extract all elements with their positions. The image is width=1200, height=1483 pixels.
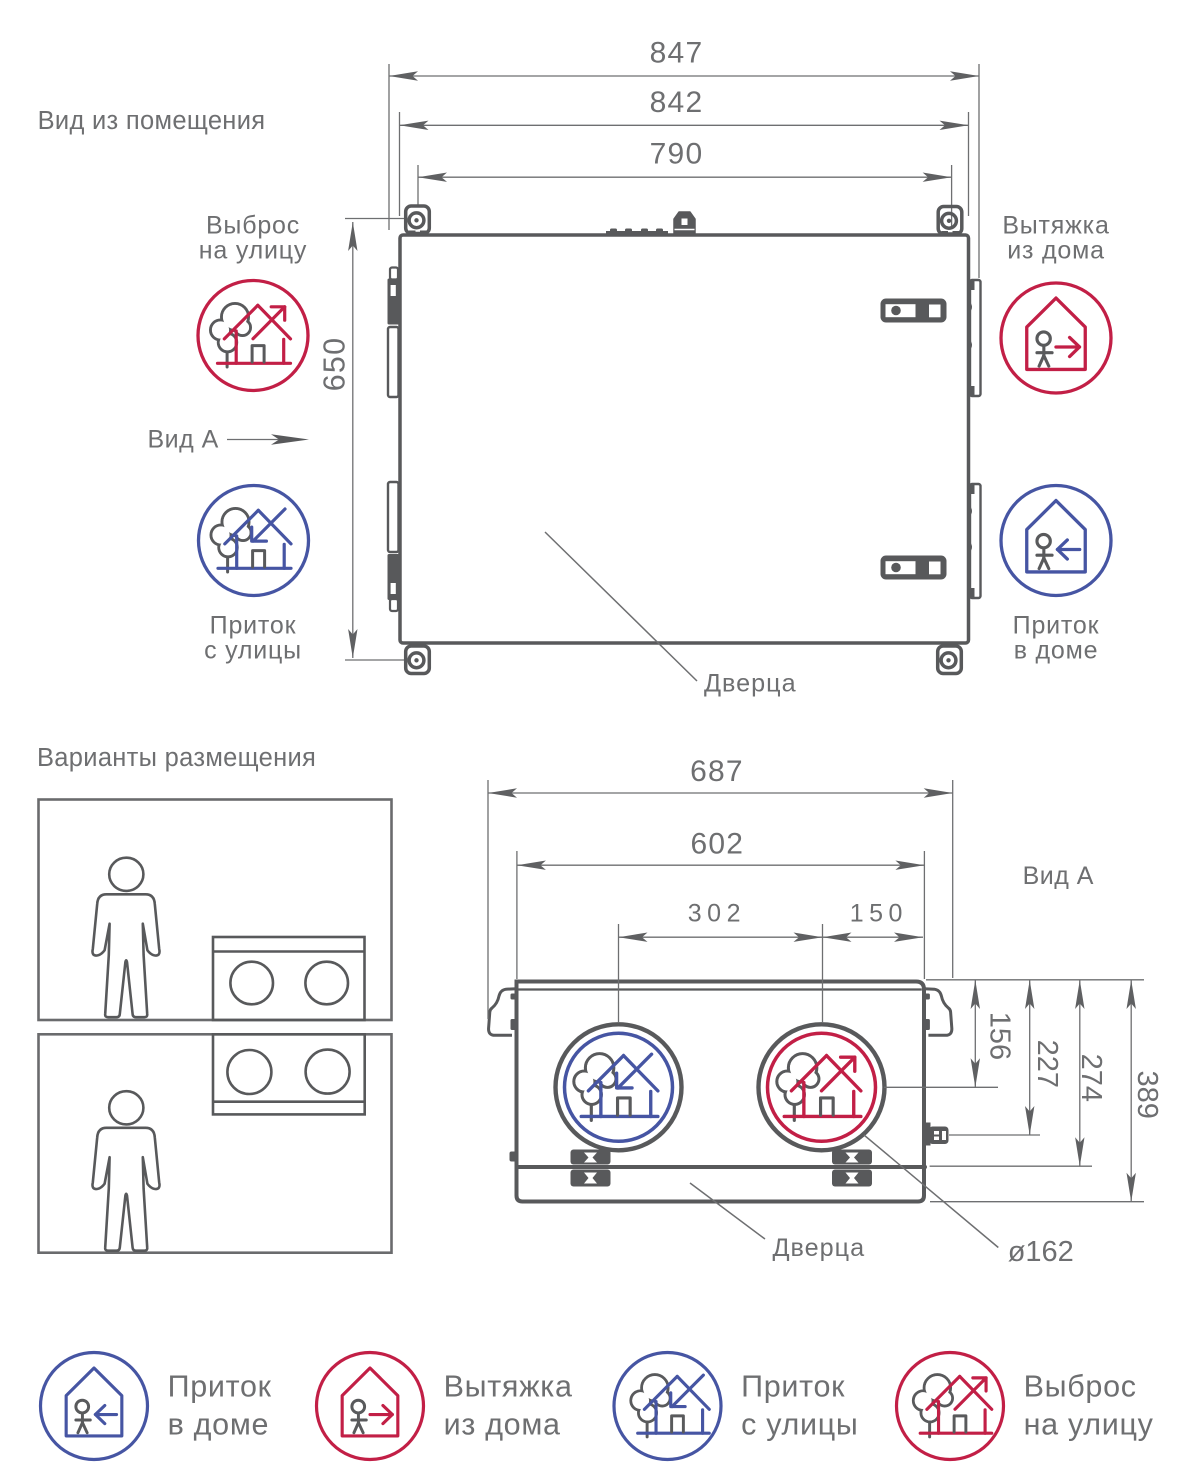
svg-text:650: 650 <box>317 337 351 392</box>
svg-text:790: 790 <box>650 138 704 171</box>
svg-text:389: 389 <box>1131 1071 1163 1119</box>
svg-text:150: 150 <box>850 900 908 928</box>
svg-text:Дверца: Дверца <box>704 670 797 698</box>
svg-text:Приток: Приток <box>741 1369 845 1403</box>
svg-text:Вид А: Вид А <box>1023 862 1094 890</box>
svg-text:274: 274 <box>1075 1054 1107 1102</box>
svg-text:на улицу: на улицу <box>1024 1407 1154 1441</box>
svg-text:Дверца: Дверца <box>773 1234 866 1262</box>
svg-text:602: 602 <box>690 828 744 861</box>
svg-text:Приток: Приток <box>210 612 297 640</box>
svg-text:из дома: из дома <box>444 1407 561 1441</box>
svg-text:842: 842 <box>650 86 704 119</box>
svg-text:Выброс: Выброс <box>206 212 300 240</box>
svg-text:Приток: Приток <box>168 1369 272 1403</box>
svg-text:302: 302 <box>688 900 746 928</box>
svg-text:Вид А: Вид А <box>148 426 219 454</box>
svg-text:Варианты размещения: Варианты размещения <box>37 744 316 772</box>
svg-text:Вид из помещения: Вид из помещения <box>38 107 266 135</box>
svg-text:Вытяжка: Вытяжка <box>1002 212 1109 240</box>
svg-text:847: 847 <box>650 37 704 70</box>
svg-text:ø162: ø162 <box>1008 1236 1074 1268</box>
svg-text:Вытяжка: Вытяжка <box>444 1369 573 1403</box>
svg-text:156: 156 <box>984 1012 1016 1060</box>
svg-text:Приток: Приток <box>1013 612 1100 640</box>
svg-text:с улицы: с улицы <box>204 637 302 665</box>
svg-text:на улицу: на улицу <box>199 237 307 265</box>
svg-text:из дома: из дома <box>1007 237 1105 265</box>
svg-text:227: 227 <box>1031 1040 1063 1088</box>
svg-text:в доме: в доме <box>168 1407 270 1441</box>
svg-text:687: 687 <box>690 755 744 788</box>
svg-text:Выброс: Выброс <box>1024 1369 1137 1403</box>
svg-text:с улицы: с улицы <box>741 1407 858 1441</box>
svg-text:в доме: в доме <box>1014 637 1099 665</box>
